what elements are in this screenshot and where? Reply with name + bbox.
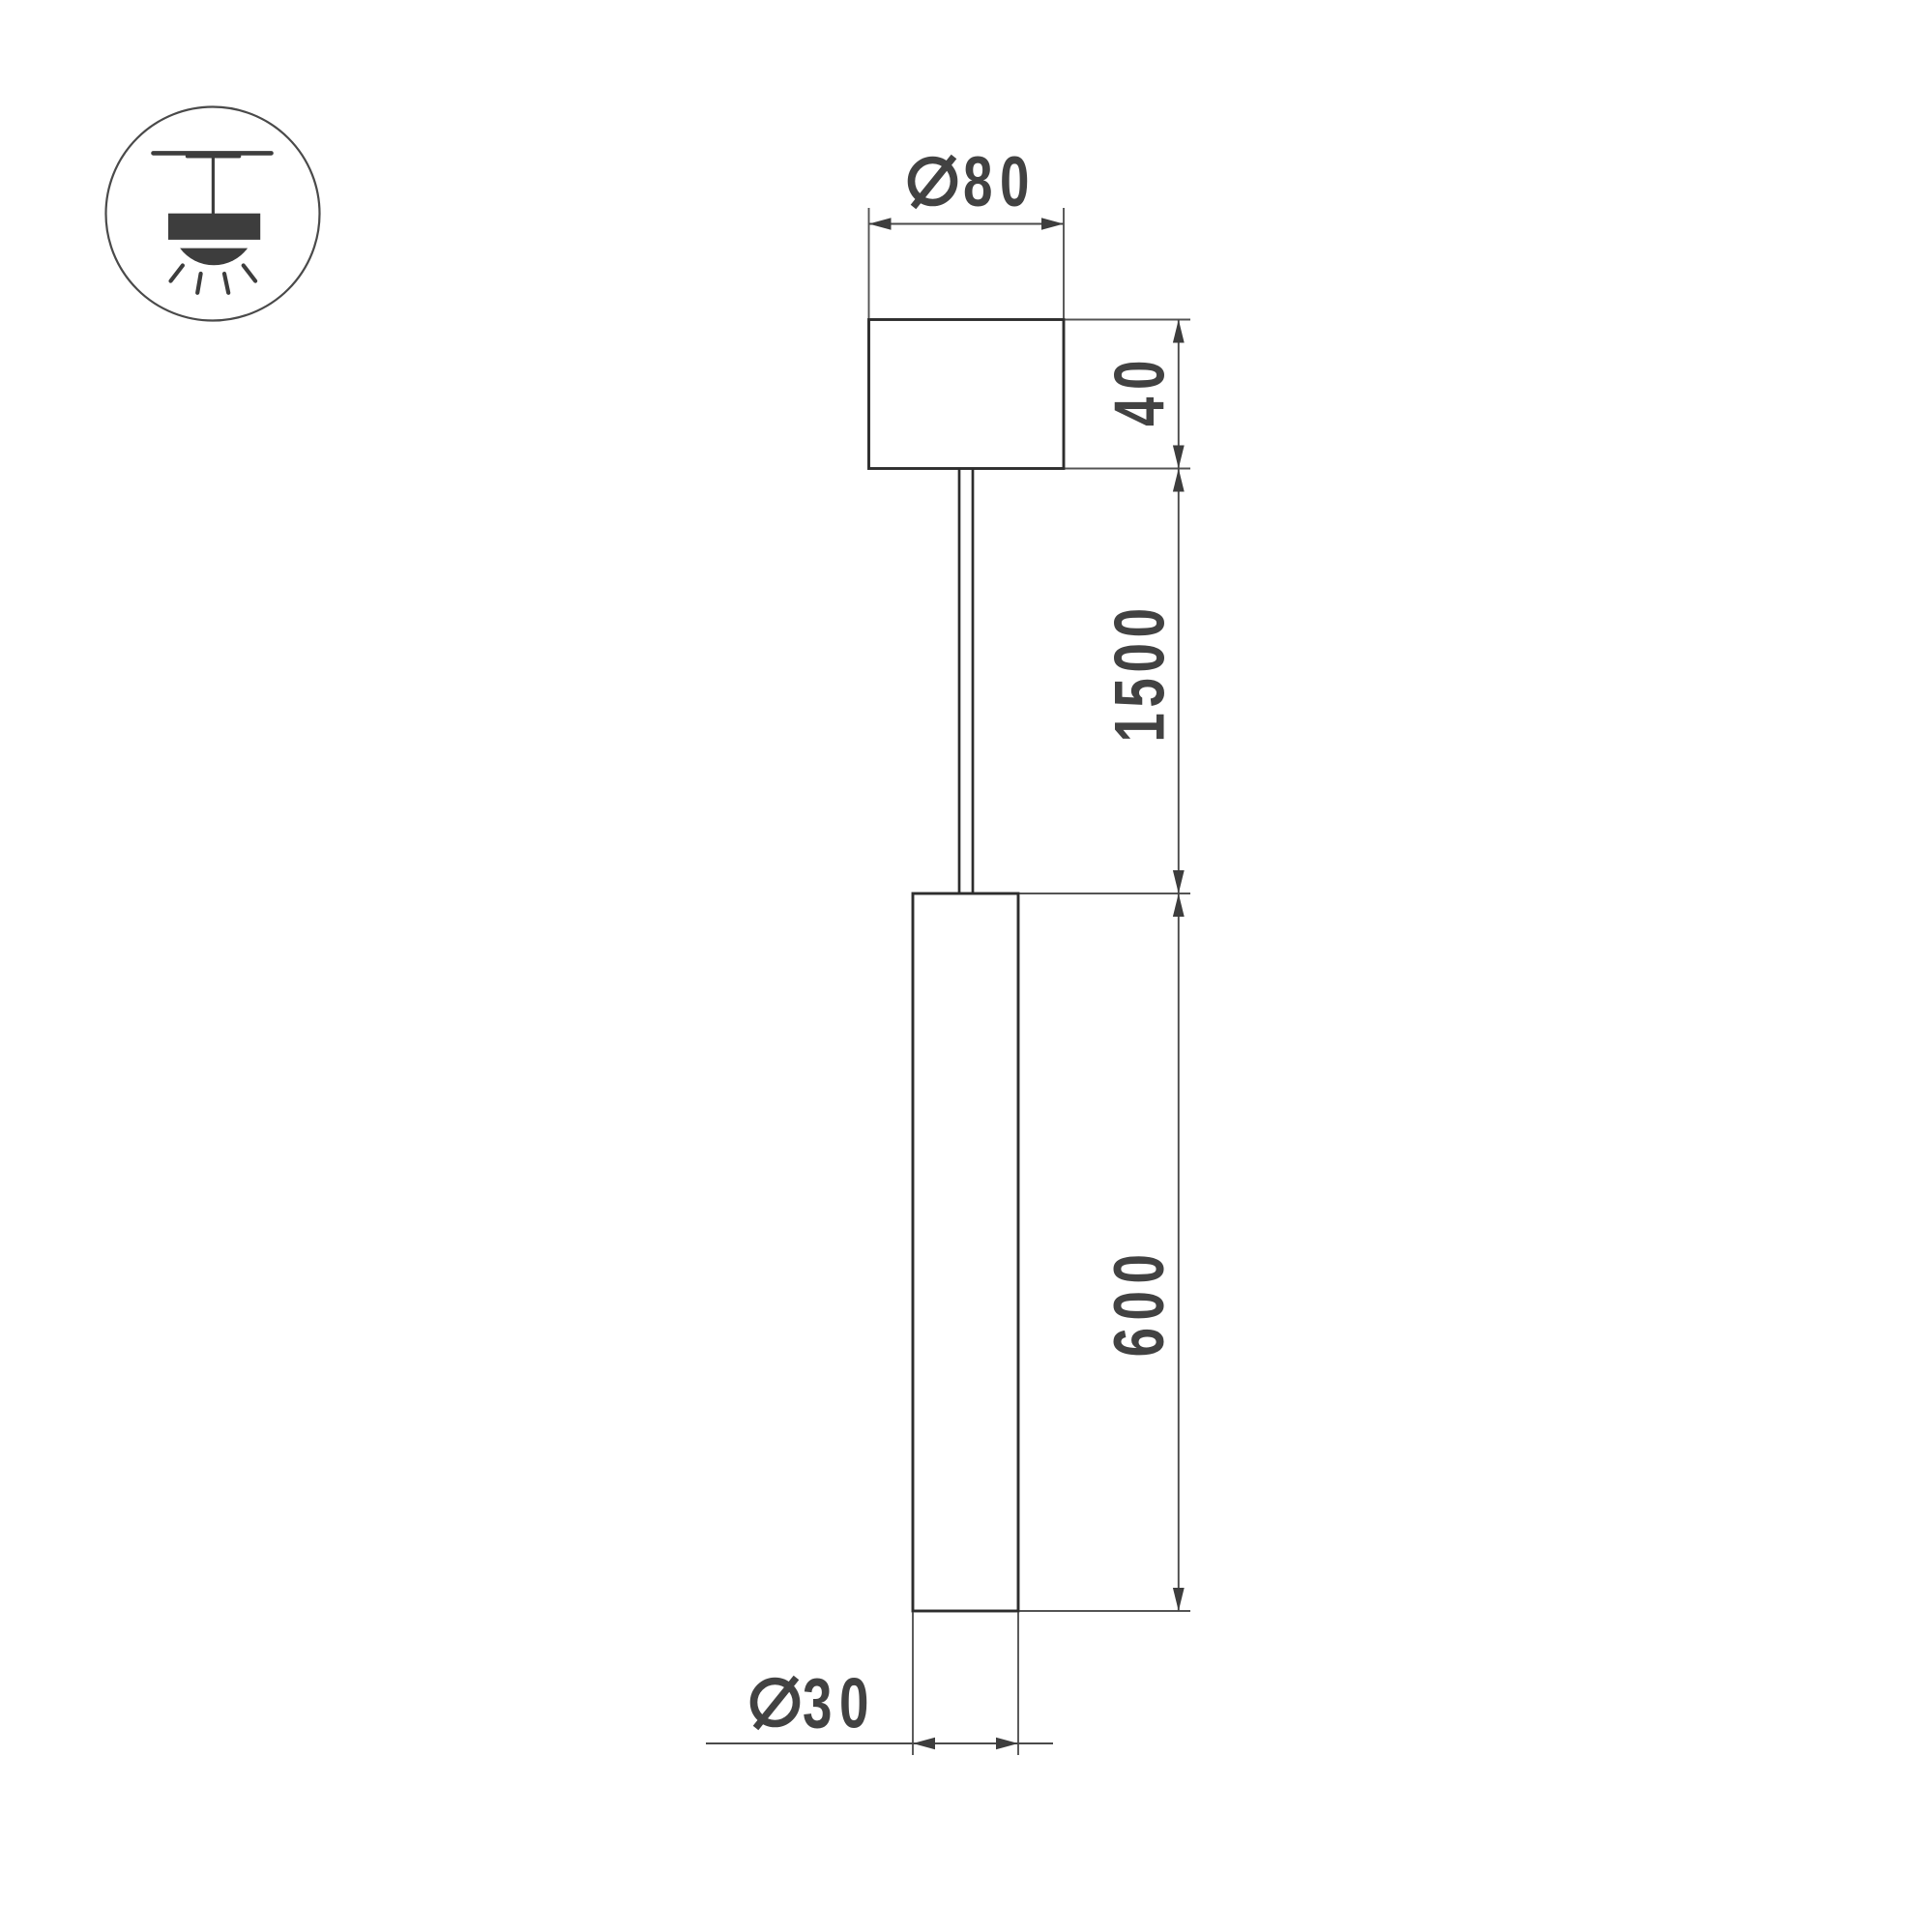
svg-text:600: 600 [1099, 1247, 1178, 1358]
svg-text:40: 40 [1100, 353, 1179, 426]
svg-text:80: 80 [963, 142, 1037, 220]
svg-text:1500: 1500 [1100, 602, 1179, 742]
svg-text:30: 30 [803, 1664, 876, 1742]
